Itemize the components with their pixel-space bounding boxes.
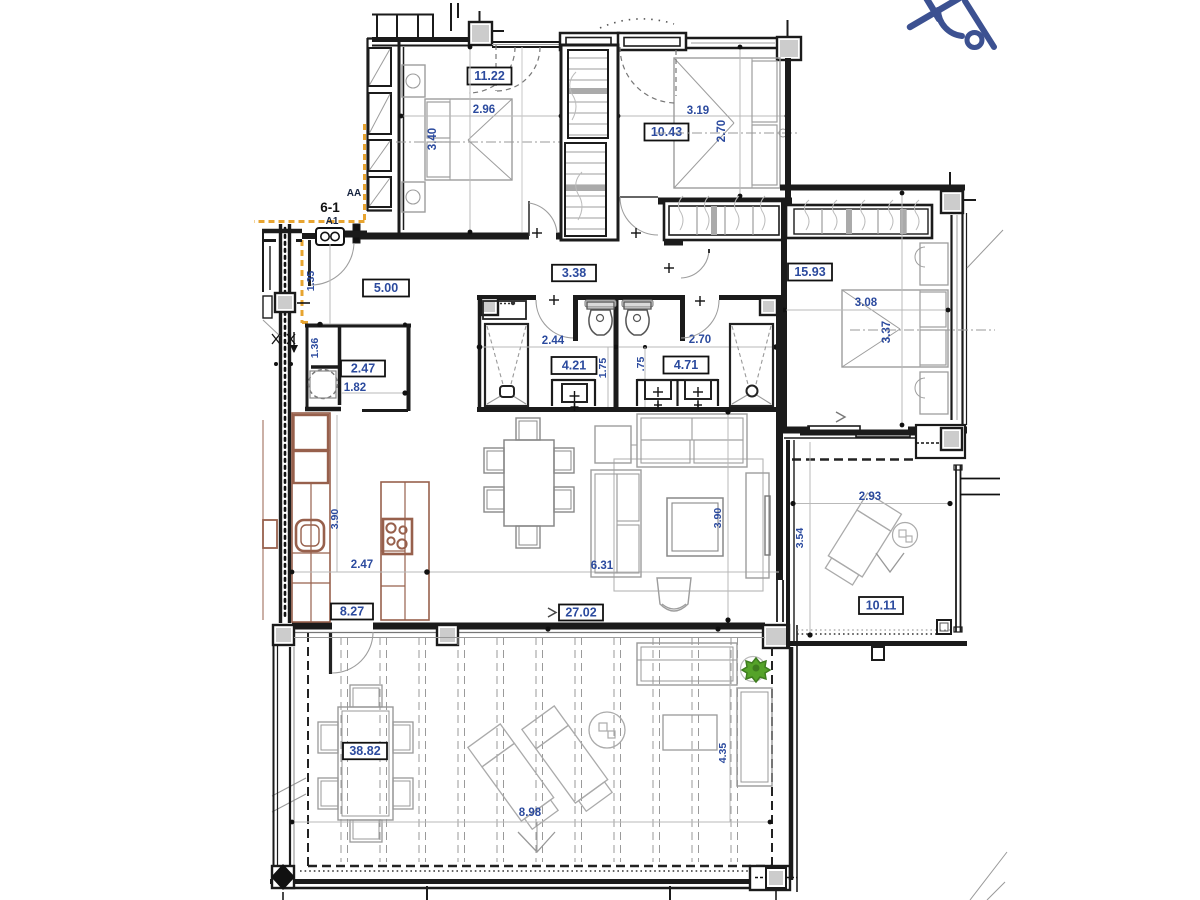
svg-text:3.37: 3.37: [881, 321, 893, 343]
svg-text:3.08: 3.08: [855, 297, 878, 309]
svg-text:4.21: 4.21: [562, 359, 586, 373]
svg-text:AA: AA: [347, 188, 361, 199]
svg-text:3.90: 3.90: [712, 508, 724, 529]
svg-text:.75: .75: [635, 357, 647, 372]
svg-text:2.70: 2.70: [689, 334, 711, 346]
svg-text:2.47: 2.47: [351, 362, 375, 376]
svg-text:10.43: 10.43: [651, 125, 682, 139]
svg-text:1.75: 1.75: [597, 358, 609, 379]
svg-text:4.35: 4.35: [717, 743, 729, 764]
svg-text:A1: A1: [326, 216, 339, 227]
svg-text:3.90: 3.90: [329, 509, 341, 530]
svg-text:4.71: 4.71: [674, 358, 698, 372]
svg-text:2.47: 2.47: [351, 559, 373, 571]
svg-text:3.19: 3.19: [687, 105, 709, 117]
svg-text:3.40: 3.40: [427, 128, 439, 150]
svg-text:10.11: 10.11: [866, 599, 897, 613]
svg-text:1.36: 1.36: [309, 338, 321, 359]
svg-text:5.00: 5.00: [374, 281, 398, 295]
svg-text:38.82: 38.82: [349, 744, 380, 758]
svg-text:2.93: 2.93: [859, 491, 881, 503]
svg-text:2.44: 2.44: [542, 335, 565, 347]
svg-text:11.22: 11.22: [474, 69, 505, 83]
svg-text:27.02: 27.02: [565, 606, 596, 620]
svg-text:8.27: 8.27: [340, 605, 364, 619]
svg-text:8.98: 8.98: [519, 807, 542, 819]
svg-text:2.70: 2.70: [716, 120, 728, 142]
svg-text:6.31: 6.31: [591, 560, 614, 572]
svg-text:6-1: 6-1: [320, 200, 340, 215]
svg-text:3.38: 3.38: [562, 266, 586, 280]
svg-text:1.82: 1.82: [344, 382, 366, 394]
svg-text:15.93: 15.93: [794, 265, 825, 279]
svg-text:2.96: 2.96: [473, 104, 495, 116]
svg-text:1.35: 1.35: [305, 271, 317, 292]
svg-text:3.54: 3.54: [794, 528, 806, 549]
